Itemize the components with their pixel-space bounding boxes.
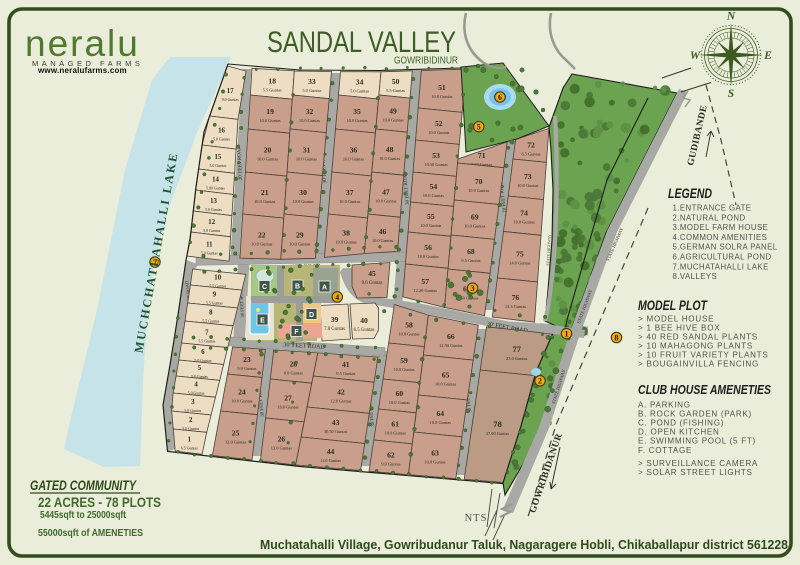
svg-text:23.0 Guntas: 23.0 Guntas	[506, 356, 528, 361]
svg-text:5.00 Guntas: 5.00 Guntas	[206, 187, 225, 191]
svg-text:10.8 Guntas: 10.8 Guntas	[424, 460, 446, 465]
svg-text:5.0 Guntas: 5.0 Guntas	[209, 164, 226, 168]
svg-text:10.0 Guntas: 10.0 Guntas	[372, 238, 394, 243]
svg-text:4: 4	[194, 382, 198, 389]
svg-text:10.0 Guntas: 10.0 Guntas	[254, 199, 276, 204]
svg-text:6.5 Guntas: 6.5 Guntas	[181, 447, 198, 451]
svg-text:10.0 Guntas: 10.0 Guntas	[428, 130, 450, 135]
svg-text:55000sqft of AMENETIES: 55000sqft of AMENETIES	[38, 527, 143, 539]
svg-text:55: 55	[427, 212, 435, 221]
svg-text:10.50 Guntas: 10.50 Guntas	[424, 162, 448, 167]
svg-text:38: 38	[342, 229, 350, 238]
svg-text:76: 76	[512, 293, 520, 302]
svg-text:10.0 Guntas: 10.0 Guntas	[292, 199, 314, 204]
svg-text:10.0 Guntas: 10.0 Guntas	[251, 241, 273, 246]
svg-text:33: 33	[308, 77, 316, 86]
svg-text:13.3 Guntas: 13.3 Guntas	[505, 304, 527, 309]
svg-text:1: 1	[188, 437, 192, 444]
svg-text:72: 72	[527, 140, 535, 149]
svg-text:10.0 Guntas: 10.0 Guntas	[385, 430, 407, 435]
svg-text:10.0 Guntas: 10.0 Guntas	[346, 118, 368, 123]
svg-text:54: 54	[430, 182, 438, 191]
svg-text:10.0 Guntas: 10.0 Guntas	[257, 157, 279, 162]
svg-text:10.0 Guntas: 10.0 Guntas	[420, 223, 442, 228]
svg-text:3: 3	[471, 284, 475, 293]
svg-text:E: E	[260, 317, 265, 324]
svg-text:E: E	[763, 50, 772, 62]
svg-text:10.0 Guntas: 10.0 Guntas	[464, 224, 486, 229]
svg-text:> 10 FRUIT VARIETY PLANTS: > 10 FRUIT VARIETY PLANTS	[638, 351, 769, 360]
svg-text:5: 5	[198, 365, 202, 372]
svg-text:B: B	[295, 283, 300, 290]
svg-text:56: 56	[424, 243, 432, 252]
svg-text:70: 70	[475, 177, 483, 186]
svg-text:> 1 BEE HIVE BOX: > 1 BEE HIVE BOX	[638, 324, 720, 333]
svg-text:5.0 Guntas: 5.0 Guntas	[203, 229, 220, 233]
svg-text:12.0 Guntas: 12.0 Guntas	[225, 439, 247, 444]
svg-text:2: 2	[189, 417, 193, 424]
svg-text:6: 6	[201, 349, 205, 356]
svg-text:10.0 Guntas: 10.0 Guntas	[393, 367, 415, 372]
svg-text:10.8 Guntas: 10.8 Guntas	[398, 331, 420, 336]
svg-text:6.5 Guntas: 6.5 Guntas	[521, 151, 540, 156]
svg-text:10.0 Guntas: 10.0 Guntas	[299, 118, 321, 123]
svg-text:47: 47	[382, 188, 390, 197]
svg-text:5445sqft to 25000sqft: 5445sqft to 25000sqft	[40, 509, 126, 521]
svg-text:23: 23	[243, 355, 251, 364]
svg-text:68: 68	[467, 247, 475, 256]
svg-text:6.AGRICULTURAL POND: 6.AGRICULTURAL POND	[673, 253, 772, 262]
svg-text:18: 18	[268, 76, 276, 85]
svg-text:61: 61	[391, 419, 399, 428]
svg-text:F. COTTAGE: F. COTTAGE	[638, 446, 692, 455]
svg-text:4.COMMON AMENITIES: 4.COMMON AMENITIES	[673, 233, 768, 242]
svg-text:> 10 MAHAGONG PLANTS: > 10 MAHAGONG PLANTS	[638, 342, 753, 351]
svg-text:10.0 Guntas: 10.0 Guntas	[431, 94, 453, 99]
svg-text:22: 22	[258, 230, 266, 239]
svg-text:10.0 Guntas: 10.0 Guntas	[296, 156, 318, 161]
svg-text:5.0 Guntas: 5.0 Guntas	[205, 208, 222, 212]
svg-text:13: 13	[210, 198, 217, 205]
svg-text:GOWRIBIDINUR: GOWRIBIDINUR	[394, 56, 458, 67]
svg-text:9.5 Guntas: 9.5 Guntas	[461, 258, 480, 263]
svg-text:65: 65	[442, 371, 450, 380]
svg-text:37: 37	[346, 188, 354, 197]
svg-text:62: 62	[387, 451, 395, 460]
svg-text:10.0 Guntas: 10.0 Guntas	[379, 156, 401, 161]
svg-text:9.0 Guntas: 9.0 Guntas	[237, 366, 256, 371]
svg-text:B. ROCK GARDEN (PARK): B. ROCK GARDEN (PARK)	[638, 410, 752, 419]
svg-text:12.0 Guntas: 12.0 Guntas	[330, 399, 352, 404]
svg-text:4: 4	[335, 293, 339, 302]
svg-text:2.NATURAL POND: 2.NATURAL POND	[673, 213, 746, 222]
svg-text:66: 66	[447, 332, 455, 341]
svg-text:44: 44	[327, 447, 335, 456]
svg-text:neralu: neralu	[25, 23, 140, 64]
svg-text:8: 8	[615, 333, 619, 342]
svg-text:49: 49	[389, 107, 397, 116]
svg-text:14.0 Guntas: 14.0 Guntas	[509, 261, 531, 266]
svg-text:9.0 Guntas: 9.0 Guntas	[381, 462, 400, 467]
svg-text:52: 52	[435, 119, 443, 128]
svg-text:30: 30	[299, 188, 307, 197]
svg-text:10.0 Guntas: 10.0 Guntas	[389, 400, 411, 405]
svg-text:LEGEND: LEGEND	[668, 186, 712, 201]
svg-text:58: 58	[405, 320, 413, 329]
svg-text:5.5 Guntas: 5.5 Guntas	[198, 339, 215, 343]
svg-text:14: 14	[212, 177, 219, 184]
svg-text:39: 39	[331, 315, 339, 324]
svg-text:5: 5	[477, 123, 481, 132]
svg-text:12: 12	[208, 219, 215, 226]
svg-text:9.5 Guntas: 9.5 Guntas	[336, 371, 355, 376]
svg-text:11: 11	[206, 242, 213, 249]
svg-text:17: 17	[227, 88, 234, 95]
svg-text:35: 35	[353, 107, 361, 116]
svg-text:10.0 Guntas: 10.0 Guntas	[289, 241, 311, 246]
svg-text:SANDAL VALLEY: SANDAL VALLEY	[267, 26, 456, 59]
svg-text:41: 41	[342, 360, 350, 369]
svg-text:8: 8	[209, 309, 213, 316]
svg-text:7.MUCHATAHALLI LAKE: 7.MUCHATAHALLI LAKE	[673, 262, 769, 271]
svg-text:50: 50	[392, 77, 400, 86]
svg-text:1.ENTRANCE GATE: 1.ENTRANCE GATE	[673, 204, 752, 213]
svg-text:3: 3	[191, 399, 195, 406]
svg-text:34: 34	[356, 77, 364, 86]
svg-text:25: 25	[232, 428, 240, 437]
svg-text:N: N	[726, 11, 736, 23]
svg-text:19: 19	[266, 107, 274, 116]
svg-text:5.0 Guntas: 5.0 Guntas	[302, 88, 321, 93]
svg-text:E. SWIMMING POOL (5 FT): E. SWIMMING POOL (5 FT)	[638, 437, 756, 446]
svg-text:5.0 Guntas: 5.0 Guntas	[213, 137, 230, 141]
svg-text:GATED COMMUNITY: GATED COMMUNITY	[30, 478, 138, 493]
svg-text:CLUB HOUSE AMENETIES: CLUB HOUSE AMENETIES	[638, 383, 771, 397]
svg-text:3.MODEL FARM HOUSE: 3.MODEL FARM HOUSE	[673, 223, 769, 232]
svg-text:10.0 Guntas: 10.0 Guntas	[468, 188, 490, 193]
svg-text:31: 31	[303, 145, 311, 154]
svg-text:21: 21	[261, 188, 269, 197]
svg-text:10.0 Guntas: 10.0 Guntas	[259, 118, 281, 123]
svg-text:48: 48	[386, 145, 394, 154]
svg-text:6: 6	[498, 93, 502, 102]
svg-text:15: 15	[215, 154, 222, 161]
svg-text:57: 57	[421, 277, 429, 286]
svg-text:29: 29	[296, 230, 304, 239]
svg-text:W: W	[690, 50, 701, 62]
svg-text:C. POND (FISHING): C. POND (FISHING)	[638, 419, 724, 428]
svg-text:75: 75	[516, 250, 524, 259]
svg-text:2: 2	[538, 377, 542, 386]
svg-text:10.0 Guntas: 10.0 Guntas	[430, 420, 452, 425]
svg-text:NTS: NTS	[465, 513, 488, 524]
svg-text:5.GERMAN SOLRA PANEL: 5.GERMAN SOLRA PANEL	[673, 243, 778, 252]
svg-text:> SOLAR STREET LIGHTS: > SOLAR STREET LIGHTS	[638, 468, 753, 477]
svg-text:24: 24	[238, 387, 246, 396]
svg-text:10.0 Guntas: 10.0 Guntas	[339, 199, 361, 204]
svg-text:59: 59	[400, 356, 408, 365]
svg-text:46: 46	[379, 227, 387, 236]
svg-text:10.0 Guntas: 10.0 Guntas	[517, 183, 539, 188]
svg-text:7.0 Guntas: 7.0 Guntas	[324, 327, 345, 332]
svg-text:13.0 Guntas: 13.0 Guntas	[271, 446, 293, 451]
svg-text:63: 63	[431, 449, 439, 458]
svg-text:30.50 Guntas: 30.50 Guntas	[324, 429, 348, 434]
svg-text:78: 78	[493, 419, 502, 429]
svg-text:10.0 Guntas: 10.0 Guntas	[513, 220, 535, 225]
svg-text:12.50 Guntas: 12.50 Guntas	[439, 343, 463, 348]
svg-text:40: 40	[360, 316, 368, 325]
svg-text:12.20 Guntas: 12.20 Guntas	[413, 288, 437, 293]
svg-text:F: F	[294, 329, 299, 336]
svg-text:Muchatahalli Village, Gowribud: Muchatahalli Village, Gowribudanur Taluk…	[260, 538, 788, 552]
svg-text:22 ACRES - 78 PLOTS: 22 ACRES - 78 PLOTS	[38, 494, 161, 510]
svg-text:69: 69	[471, 213, 479, 222]
svg-text:26: 26	[278, 435, 286, 444]
svg-text:S: S	[728, 88, 734, 100]
svg-text:10.0 Guntas: 10.0 Guntas	[343, 157, 365, 162]
svg-text:10.0 Guntas: 10.0 Guntas	[375, 199, 397, 204]
svg-text:10.0 Guntas: 10.0 Guntas	[277, 405, 299, 410]
svg-text:5.5 Guntas: 5.5 Guntas	[386, 88, 405, 93]
svg-text:A. PARKING: A. PARKING	[638, 401, 691, 410]
svg-text:6.5 Guntas: 6.5 Guntas	[354, 328, 375, 333]
svg-text:10.0 Guntas: 10.0 Guntas	[435, 382, 457, 387]
svg-text:32: 32	[306, 107, 314, 116]
svg-text:9: 9	[213, 292, 217, 299]
svg-text:73: 73	[524, 172, 532, 181]
svg-text:10.0 Guntas: 10.0 Guntas	[231, 398, 253, 403]
svg-text:> 40 RED SANDAL PLANTS: > 40 RED SANDAL PLANTS	[638, 333, 758, 342]
svg-text:60: 60	[396, 389, 404, 398]
svg-text:> MODEL HOUSE: > MODEL HOUSE	[638, 315, 714, 324]
svg-text:10.0 Guntas: 10.0 Guntas	[382, 118, 404, 123]
svg-text:20: 20	[264, 146, 272, 155]
svg-text:16: 16	[218, 127, 225, 134]
svg-text:51: 51	[438, 83, 446, 92]
svg-text:D: D	[309, 312, 314, 319]
svg-text:D. OPEN KITCHEN: D. OPEN KITCHEN	[638, 428, 720, 437]
svg-text:MODEL PLOT: MODEL PLOT	[638, 298, 708, 313]
svg-text:5.0 Guntas: 5.0 Guntas	[350, 88, 369, 93]
svg-text:45: 45	[368, 269, 376, 278]
svg-text:9.0 Guntas: 9.0 Guntas	[222, 98, 239, 102]
svg-text:11.0 Guntas: 11.0 Guntas	[320, 458, 341, 463]
svg-text:74: 74	[520, 209, 528, 218]
svg-text:1: 1	[565, 330, 569, 339]
svg-text:53: 53	[432, 151, 440, 160]
svg-text:27: 27	[284, 394, 292, 403]
svg-text:8.0 Guntas: 8.0 Guntas	[284, 370, 303, 375]
svg-text:8.VALLEYS: 8.VALLEYS	[673, 272, 718, 281]
svg-text:7: 7	[205, 329, 209, 336]
svg-text:> BOUGAINVILLA FENCING: > BOUGAINVILLA FENCING	[638, 360, 759, 369]
svg-text:> SURVEILLANCE CAMERA: > SURVEILLANCE CAMERA	[638, 459, 758, 468]
svg-text:10.9 Guntas: 10.9 Guntas	[335, 240, 357, 245]
svg-text:42: 42	[337, 388, 345, 397]
svg-text:71: 71	[478, 151, 486, 160]
svg-text:5.5 Guntas: 5.5 Guntas	[263, 87, 282, 92]
svg-text:77: 77	[512, 344, 521, 354]
svg-text:9.6 Guntas: 9.6 Guntas	[362, 281, 383, 286]
svg-text:43: 43	[332, 418, 340, 427]
svg-text:36: 36	[350, 146, 358, 155]
svg-text:64: 64	[437, 409, 445, 418]
svg-text:10.0 Guntas: 10.0 Guntas	[423, 193, 445, 198]
svg-text:10: 10	[214, 275, 221, 282]
svg-text:A: A	[322, 284, 327, 291]
svg-text:37.90 Guntas: 37.90 Guntas	[486, 431, 510, 436]
svg-text:18.0 Guntas: 18.0 Guntas	[417, 254, 439, 259]
svg-text:www.neralufarms.com: www.neralufarms.com	[37, 66, 127, 75]
